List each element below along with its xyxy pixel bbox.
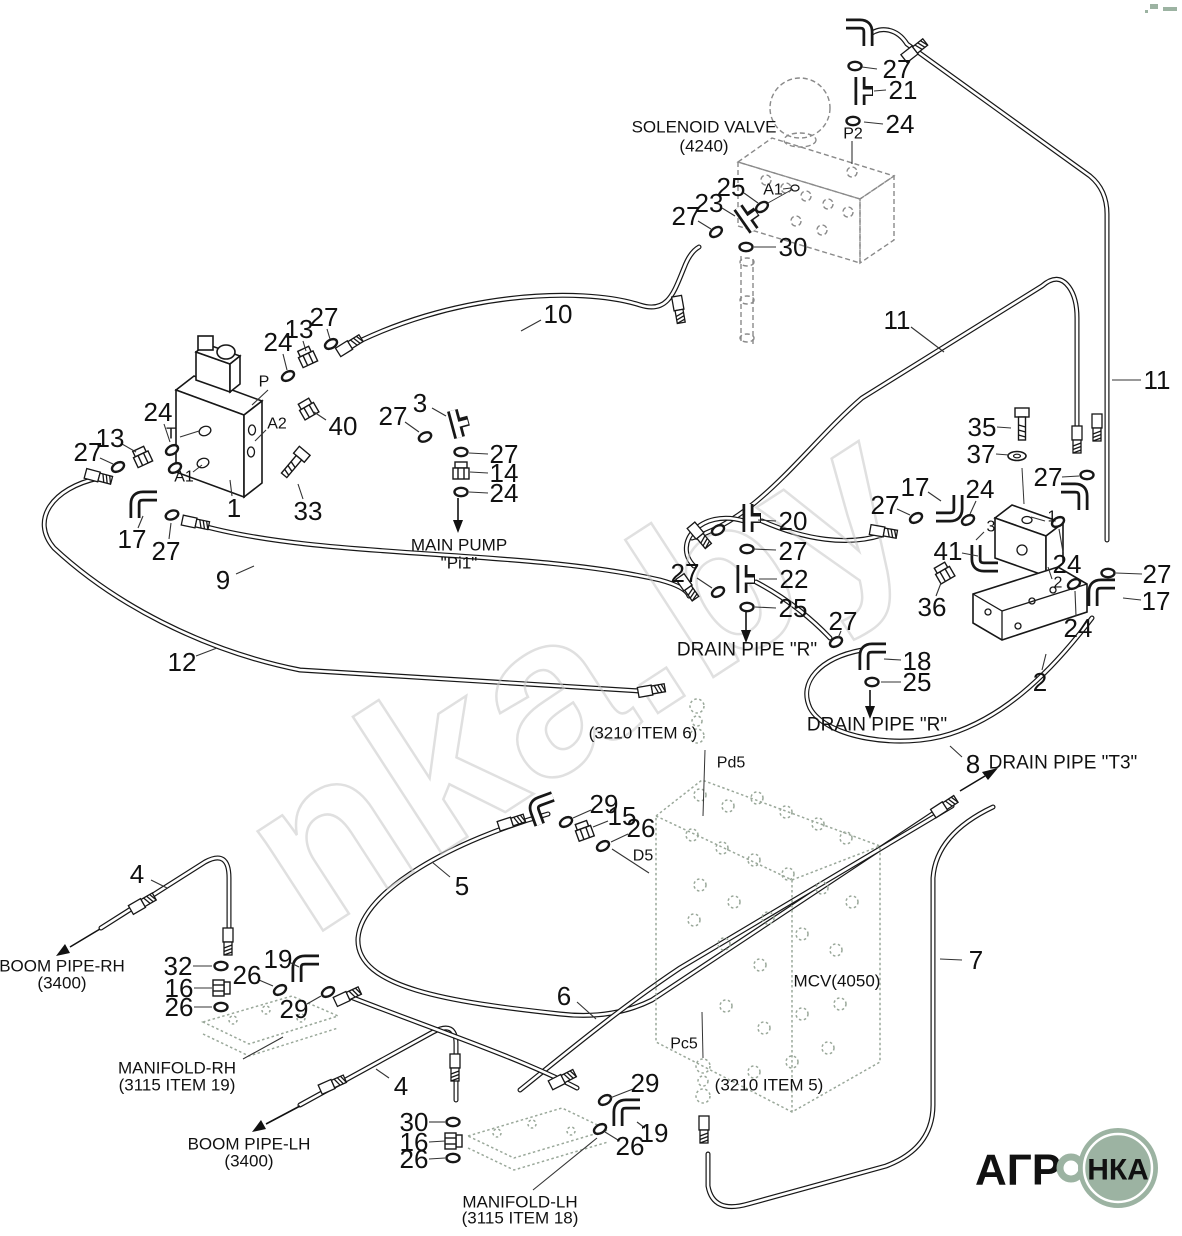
leader-line	[940, 959, 962, 960]
part-callout-2: 2	[1033, 667, 1047, 697]
part-callout-10: 10	[544, 299, 573, 329]
leader-line	[429, 1158, 445, 1159]
hoseend-symbol	[128, 892, 156, 914]
part-callout-7: 7	[969, 945, 983, 975]
oring-symbol	[110, 460, 125, 474]
part-callout-24: 24	[490, 478, 519, 508]
label-3: 3	[987, 519, 996, 536]
hoseend-symbol	[672, 295, 687, 323]
label-pc5: Pc5	[670, 1036, 698, 1053]
washer-symbol	[1008, 452, 1026, 461]
leader-line	[911, 327, 944, 352]
part-callout-24: 24	[966, 474, 995, 504]
leader-line	[864, 122, 883, 124]
part-callout-1: 1	[227, 493, 241, 523]
part-callout-4: 4	[394, 1071, 408, 1101]
part-callout-26: 26	[165, 992, 194, 1022]
leader-line	[593, 821, 608, 827]
label-solenoidvalve: SOLENOID VALVE	[632, 118, 777, 137]
part-callout-27: 27	[829, 606, 858, 636]
oring-symbol	[741, 603, 754, 611]
label-t: T	[166, 426, 176, 443]
watermark-fragment	[1145, 4, 1177, 13]
sfit-symbol	[296, 345, 318, 367]
elbow-symbol	[846, 24, 868, 46]
part-callout-17: 17	[1142, 586, 1171, 616]
part-callout-12: 12	[168, 647, 197, 677]
label-4240: (4240)	[679, 137, 728, 156]
part-callout-27: 27	[672, 201, 701, 231]
oring-symbol	[280, 369, 295, 383]
leader-line	[432, 408, 446, 416]
agronka-logo: АГР НКА	[975, 1128, 1158, 1208]
elbow-symbol	[864, 648, 886, 670]
leader-line	[976, 532, 984, 540]
manifold-lh-phantom	[468, 1108, 608, 1170]
elbow-symbol	[936, 495, 958, 517]
leader-line	[521, 320, 541, 331]
oring-symbol	[847, 117, 860, 125]
label-mainpump: MAIN PUMP	[411, 536, 507, 555]
part-callout-27: 27	[379, 401, 408, 431]
part-callout-27: 27	[74, 437, 103, 467]
part-callout-29: 29	[631, 1068, 660, 1098]
part-callout-24: 24	[144, 397, 173, 427]
sfit-symbol	[445, 1133, 462, 1149]
part-callout-4: 4	[130, 859, 144, 889]
part-callout-21: 21	[889, 75, 918, 105]
part-callout-8: 8	[966, 749, 980, 779]
hoseend-symbol	[1092, 414, 1102, 441]
sfit-symbol	[213, 980, 230, 996]
leader-line	[744, 193, 758, 203]
tee-symbol	[452, 407, 472, 437]
hoseend-symbol	[450, 1054, 460, 1081]
label-a2: A2	[267, 416, 287, 433]
elbow-symbol	[1093, 584, 1115, 606]
part-callout-30: 30	[779, 232, 808, 262]
part-callout-33: 33	[294, 496, 323, 526]
leader-line	[469, 453, 488, 454]
leader-line	[611, 834, 628, 842]
oring-symbol	[215, 962, 228, 970]
label-drainpiper: DRAIN PIPE "R"	[807, 715, 947, 736]
oring-symbol	[455, 448, 468, 456]
bolt-symbol	[279, 446, 310, 480]
leader-line	[997, 427, 1011, 428]
part-callout-26: 26	[233, 960, 262, 990]
oring-symbol	[447, 1118, 460, 1126]
part-callout-40: 40	[329, 411, 358, 441]
logo-text-left: АГР	[975, 1146, 1061, 1195]
label-pd5: Pd5	[717, 755, 746, 772]
label-2: 2	[1054, 575, 1063, 592]
leader-line	[429, 1141, 445, 1142]
label-1: 1	[1048, 509, 1057, 526]
part-callout-29: 29	[280, 994, 309, 1024]
hoseend-symbol	[335, 334, 363, 357]
oring-symbol	[708, 225, 723, 239]
hydraulic-piping-diagram: nka.by 272124252327301011112413274032727…	[0, 0, 1182, 1236]
leader-line	[469, 492, 488, 493]
sfit-symbol	[453, 462, 469, 479]
part-callout-22: 22	[780, 564, 809, 594]
part-callout-41: 41	[934, 536, 963, 566]
label-3115item18: (3115 ITEM 18)	[462, 1209, 579, 1228]
elbow-symbol	[618, 1104, 640, 1126]
part-callout-20: 20	[779, 506, 808, 536]
part-callout-27: 27	[1143, 559, 1172, 589]
oring-symbol	[597, 1093, 612, 1107]
oring-symbol	[215, 1003, 228, 1011]
part-callout-26: 26	[400, 1144, 429, 1174]
part-callout-27: 27	[1034, 462, 1063, 492]
part-callout-11: 11	[1144, 365, 1171, 395]
leader-line	[196, 648, 217, 656]
part-callout-9: 9	[216, 565, 230, 595]
oring-symbol	[417, 430, 432, 443]
oring-symbol	[455, 488, 468, 496]
leader-line	[307, 996, 321, 1004]
part-callout-25: 25	[903, 667, 932, 697]
oring-symbol	[447, 1154, 460, 1162]
bolt-symbol	[1015, 408, 1029, 440]
label-3210item6: (3210 ITEM 6)	[589, 724, 698, 743]
oring-symbol	[741, 545, 754, 553]
part-callout-11: 11	[884, 305, 911, 335]
leader-line	[950, 746, 962, 757]
part-callout-5: 5	[455, 871, 469, 901]
parts-diagram-page: nka.by 272124252327301011112413274032727…	[0, 0, 1182, 1236]
part-callout-26: 26	[616, 1131, 645, 1161]
part-callout-27: 27	[779, 536, 808, 566]
part-callout-17: 17	[901, 472, 930, 502]
part-callout-27: 27	[671, 558, 700, 588]
leader-line	[928, 492, 941, 501]
label-a1: A1	[174, 469, 194, 486]
label-p2: P2	[843, 126, 863, 143]
elbow-symbol	[297, 960, 319, 982]
part-callout-27: 27	[152, 536, 181, 566]
leader-line	[151, 880, 167, 888]
oring-symbol	[1102, 569, 1115, 577]
part-callout-26: 26	[627, 813, 656, 843]
leader-line	[884, 659, 901, 660]
leader-line	[314, 412, 326, 420]
elbow-symbol	[135, 496, 157, 518]
hoseend-symbol	[181, 515, 209, 530]
tee-symbol	[860, 77, 873, 105]
part-callout-3: 3	[413, 388, 427, 418]
leader-line	[533, 1138, 597, 1190]
leader-line	[722, 208, 735, 216]
hoseend-symbol	[318, 1074, 347, 1094]
part-callout-24: 24	[1064, 613, 1093, 643]
leader-line	[862, 67, 877, 69]
part-callout-36: 36	[918, 592, 947, 622]
label-d5: D5	[633, 848, 654, 865]
leader-line	[996, 454, 1009, 455]
label-drainpiper: DRAIN PIPE "R"	[677, 640, 817, 661]
part-callout-27: 27	[871, 490, 900, 520]
leader-line	[470, 472, 488, 473]
sfit-symbol	[297, 397, 319, 420]
oring-symbol	[849, 62, 862, 70]
label-mcv4050: MCV(4050)	[794, 972, 881, 991]
part-callout-24: 24	[886, 109, 915, 139]
label-a1: A1	[763, 182, 783, 199]
label-3400: (3400)	[37, 974, 86, 993]
label-p: P	[259, 374, 270, 391]
part-callout-25: 25	[779, 593, 808, 623]
leader-line	[1062, 476, 1079, 477]
leader-line	[376, 1069, 389, 1078]
logo-text-circle: НКА	[1087, 1154, 1149, 1187]
label-pi1: "Pi1"	[441, 554, 478, 573]
hoseend-symbol	[1072, 426, 1082, 453]
oring-symbol	[1081, 471, 1094, 479]
oring-symbol	[960, 513, 975, 527]
oring-symbol	[164, 509, 179, 521]
part-callout-19: 19	[264, 944, 293, 974]
part-callout-6: 6	[557, 981, 571, 1011]
leader-line	[1116, 573, 1142, 574]
hoseend-symbol	[333, 986, 362, 1006]
label-drainpipet3: DRAIN PIPE "T3"	[989, 753, 1138, 774]
oring-symbol	[740, 243, 753, 251]
hoseend-symbol	[699, 1116, 709, 1143]
part-callout-17: 17	[118, 524, 147, 554]
label-3400: (3400)	[224, 1152, 273, 1171]
label-3210item5: (3210 ITEM 5)	[715, 1076, 824, 1095]
label-3115item19: (3115 ITEM 19)	[119, 1076, 236, 1095]
part-callout-35: 35	[968, 412, 997, 442]
leader-line	[1123, 598, 1141, 600]
hoseend-symbol	[223, 928, 233, 955]
leader-line	[874, 90, 886, 91]
elbow-symbol	[1061, 488, 1083, 510]
part-callout-27: 27	[310, 302, 339, 332]
leader-line	[783, 188, 791, 189]
oring-symbol	[595, 839, 610, 853]
part-callout-37: 37	[967, 439, 996, 469]
oring-symbol	[866, 678, 879, 686]
oring-symbol	[592, 1122, 607, 1136]
leader-line	[236, 566, 254, 574]
sfit-symbol	[131, 445, 153, 467]
